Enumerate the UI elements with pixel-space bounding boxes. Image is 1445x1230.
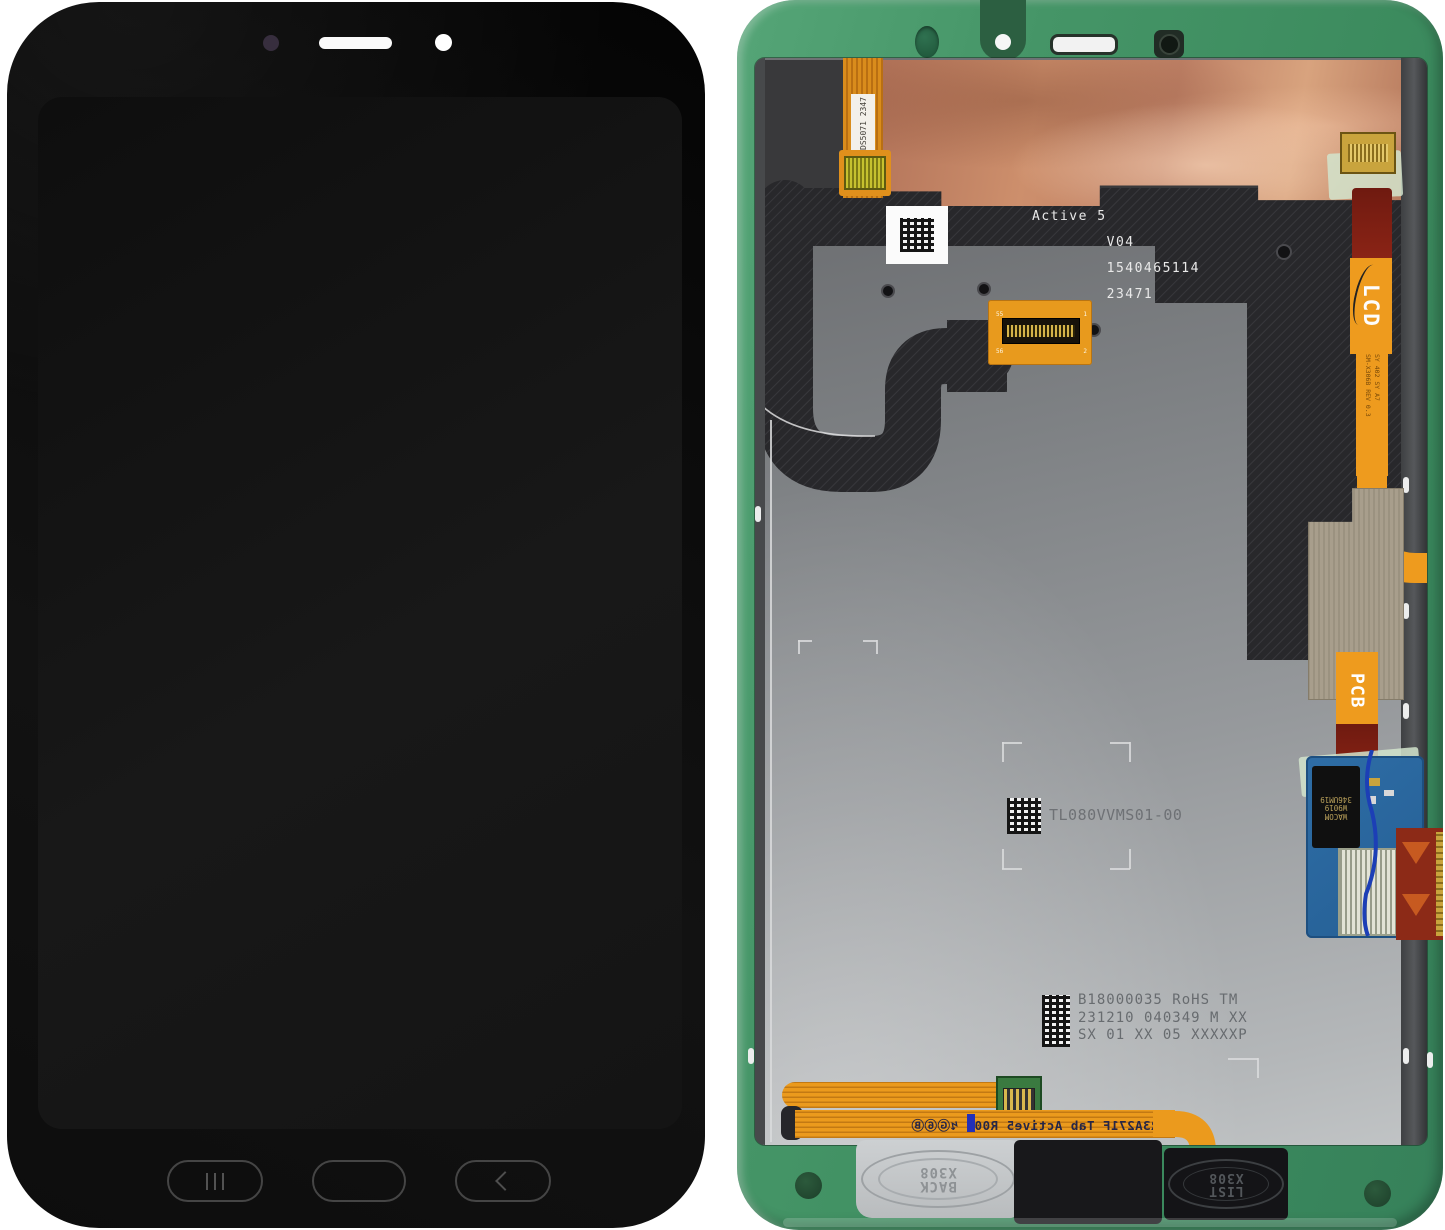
recent-line-icon [222,1173,224,1190]
list-key-emboss: LIST X308 [1183,1167,1269,1201]
back-key-emboss: BACK X308 [878,1158,998,1200]
etch-bracket [876,640,878,654]
rail-notch [755,506,761,522]
list-key-oval: LIST X308 [1168,1159,1284,1209]
chassis-left-rail [755,58,765,1145]
speaker-module [1014,1140,1162,1224]
back-key-membrane: BACK X308 [856,1140,1020,1218]
etch-bracket [1228,1058,1258,1060]
main-service-marking: Active 5 V04 1540465114 23471 [1032,210,1172,314]
qr-service-label [886,206,948,264]
blue-jumper-wire [1350,750,1390,936]
display-chassis: DS5071 2347 Active 5 V04 1540465114 2347… [755,58,1427,1145]
frame-screw-hole [1364,1180,1391,1207]
list-key-code: X308 [1208,1171,1243,1184]
rail-notch [1403,1048,1409,1064]
recent-line-icon [206,1173,208,1190]
ribbon-mirrored-text: DR3A271F Tab Active5 R00 ↯Ⓖ⑥Ⓑ [911,1115,1167,1134]
home-button [312,1160,406,1202]
btb-connector-pins [1007,325,1075,337]
flex-service-label-text: DS5071 2347 [859,97,868,150]
copper-trace-triangle [1402,842,1430,864]
list-key-label: LIST [1208,1184,1243,1197]
pcb-flex-label: PCB [1347,673,1368,709]
earpiece-slot-back [1050,34,1118,55]
panel-model-text: TL080VVMS01-00 [1049,806,1182,824]
frame-notch [1427,1052,1433,1068]
frame-tab [980,0,1026,60]
flex-service-label: DS5071 2347 [851,94,875,152]
frame-tab-hole [995,34,1011,50]
pin-label: 2 [1083,349,1087,355]
product-photo-stage: DS5071 2347 Active 5 V04 1540465114 2347… [0,0,1445,1230]
frame-bottom-edge-highlight [783,1218,1397,1227]
rail-notch [1403,703,1409,719]
connector-pins [844,156,886,190]
tablet-back-view: DS5071 2347 Active 5 V04 1540465114 2347… [737,0,1443,1230]
etch-bracket [1129,849,1131,869]
top-left-board-connector [839,150,891,196]
etch-bracket [1257,1058,1259,1078]
bottom-datamatrix-code [1042,995,1070,1047]
etch-bracket [1110,742,1130,744]
back-key-label: BACK [919,1179,957,1193]
plate-etch-line [770,420,772,1142]
etch-bracket [1002,742,1022,744]
camera-window [1154,30,1184,58]
btb-connector [1002,318,1080,344]
lcd-flex-connector [1340,132,1396,174]
datamatrix-code [900,218,934,252]
bottom-service-marking: B18000035 RoHS TM231210 040349 M XXSX 01… [1078,992,1248,1045]
back-key-code: X308 [919,1165,957,1179]
lcd-connector-pins [1348,144,1388,162]
back-button [455,1160,551,1202]
recent-apps-button [167,1160,263,1202]
tablet-front-view [7,2,705,1228]
copper-shield-foil [878,60,1406,206]
frame-oval-bump [915,26,939,58]
pin-label: 1 [1083,312,1087,318]
lcd-flex-stiffener [1352,188,1392,262]
camera-lens-hole [1159,34,1180,55]
chevron-left-icon [495,1171,515,1191]
pcb-flex-cable: PCB [1336,652,1378,730]
earpiece-slot [319,37,392,49]
bottom-flex-elbow [1153,1100,1223,1145]
right-edge-flex [1396,828,1443,940]
frame-screw-hole [795,1172,822,1199]
flex-connector-pad: 55 1 56 2 [988,300,1092,365]
blue-ink-mark [967,1114,975,1132]
etch-bracket [1002,742,1004,762]
etch-bracket [1002,868,1022,870]
chassis-right-rail [1401,58,1427,1145]
front-camera [435,34,452,51]
recent-line-icon [214,1173,216,1190]
copper-trace-triangle [1402,894,1430,916]
list-key-membrane: LIST X308 [1164,1148,1288,1220]
etch-bracket [1110,868,1130,870]
flex-gold-edge [1436,832,1443,936]
etch-bracket [798,640,800,654]
frame-notch [748,1048,754,1064]
ambient-sensor-dot [263,35,279,51]
pin-label: 56 [996,349,1003,355]
etch-bracket [863,640,877,642]
pin-label: 55 [996,312,1003,318]
panel-datamatrix-code [1007,798,1041,834]
etch-bracket [1002,849,1004,869]
front-screen [38,97,682,1129]
etch-bracket [1129,742,1131,762]
back-key-oval: BACK X308 [861,1150,1015,1208]
etch-bracket [798,640,812,642]
bottom-flex-lower: DR3A271F Tab Active5 R00 ↯Ⓖ⑥Ⓑ [795,1110,1175,1138]
bottom-flex-upper [782,1082,1000,1108]
